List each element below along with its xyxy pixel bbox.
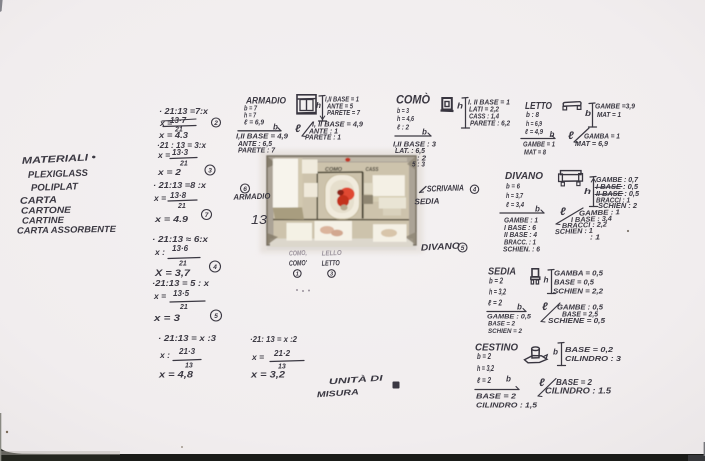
svg-text:21: 21 <box>177 203 186 210</box>
svg-text:CASS : 1,4: CASS : 1,4 <box>469 114 499 121</box>
svg-text:x =: x = <box>153 291 166 301</box>
svg-text:I,II BASE = 4,9: I,II BASE = 4,9 <box>236 134 288 141</box>
svg-text:CILINDRO : 3: CILINDRO : 3 <box>565 354 622 363</box>
svg-text:CASS: CASS <box>366 167 380 173</box>
svg-text:ℓ: ℓ <box>295 123 301 135</box>
svg-text:BASE = 0,2: BASE = 0,2 <box>565 345 614 354</box>
svg-text:x = 4.9: x = 4.9 <box>154 214 189 224</box>
svg-text:x = 4,8: x = 4,8 <box>158 370 193 380</box>
svg-text:b = 2: b = 2 <box>489 276 503 285</box>
svg-text:21·2: 21·2 <box>273 349 291 358</box>
svg-text:h = 3,2: h = 3,2 <box>477 364 494 373</box>
svg-text:21·3: 21·3 <box>178 347 196 356</box>
svg-text:COMO: COMO <box>325 167 342 173</box>
svg-text:·21: 13 = x :2: ·21: 13 = x :2 <box>250 334 297 344</box>
svg-text:b: b <box>506 375 511 384</box>
svg-text:13: 13 <box>251 212 268 227</box>
svg-text:BASE = 2: BASE = 2 <box>488 321 515 328</box>
svg-text:ℓ: ℓ <box>568 130 574 142</box>
svg-text:1: 1 <box>296 271 299 277</box>
svg-text:I BASE : 6: I BASE : 6 <box>504 225 536 232</box>
svg-text:LELLO: LELLO <box>322 250 343 258</box>
svg-text:SCHIEN : 1: SCHIEN : 1 <box>555 228 593 236</box>
svg-text:x = 2: x = 2 <box>157 167 182 177</box>
svg-text:ℓ = 4,9: ℓ = 4,9 <box>525 127 544 136</box>
svg-text:h: h <box>316 101 321 110</box>
svg-text:h: h <box>457 101 463 110</box>
svg-text:x =: x = <box>153 193 166 203</box>
svg-text:ARMADIO: ARMADIO <box>232 191 271 201</box>
svg-text:PARETE : 1: PARETE : 1 <box>305 135 341 142</box>
svg-text:h: h <box>584 187 591 196</box>
svg-text:h: h <box>544 275 549 284</box>
svg-text:·21:13 = 5 : x: ·21:13 = 5 : x <box>152 278 210 288</box>
svg-text:5 : 3: 5 : 3 <box>412 160 426 169</box>
svg-text:4: 4 <box>212 264 217 271</box>
svg-text:BASE = 2: BASE = 2 <box>476 394 516 401</box>
svg-text:GAMBE : 0,5: GAMBE : 0,5 <box>557 305 603 312</box>
svg-text:13·8: 13·8 <box>170 191 187 200</box>
svg-text:II BASE : 4: II BASE : 4 <box>504 232 537 239</box>
svg-text:PARETE : 7: PARETE : 7 <box>238 148 276 155</box>
svg-text:POLIPLAT: POLIPLAT <box>31 181 80 194</box>
svg-text:SCHIEN = 2: SCHIEN = 2 <box>488 328 522 335</box>
svg-text:b : 8: b : 8 <box>526 110 540 119</box>
svg-text:GAMBE = 1: GAMBE = 1 <box>523 142 555 149</box>
svg-text:13·6: 13·6 <box>172 244 189 253</box>
svg-text:5: 5 <box>214 313 218 320</box>
svg-text:· 21:13 = x :3: · 21:13 = x :3 <box>158 333 216 343</box>
svg-text:GAMBA = 1: GAMBA = 1 <box>584 134 620 141</box>
svg-text:3: 3 <box>330 271 333 277</box>
svg-text:DIVANO: DIVANO <box>421 241 460 253</box>
svg-text:x = 4.3: x = 4.3 <box>158 130 188 140</box>
svg-text:b: b <box>585 109 591 118</box>
svg-text:13: 13 <box>185 363 193 370</box>
svg-text:· 21:13 =7:x: · 21:13 =7:x <box>159 106 209 116</box>
svg-text:GAMBE : 0,7: GAMBE : 0,7 <box>596 177 639 184</box>
svg-text:ℓ: ℓ <box>542 301 548 313</box>
svg-text:GAMBE =3,9: GAMBE =3,9 <box>595 103 635 110</box>
svg-text:GAMBE : 0,5: GAMBE : 0,5 <box>487 314 531 321</box>
svg-text:MAT = 1: MAT = 1 <box>597 112 621 119</box>
svg-text:MAT = 8: MAT = 8 <box>524 150 546 157</box>
svg-text:21: 21 <box>178 261 187 268</box>
svg-text:X = 3,7: X = 3,7 <box>154 268 191 278</box>
svg-text:COMO': COMO' <box>289 258 307 268</box>
svg-text:· 21:13 =8 :x: · 21:13 =8 :x <box>153 180 207 190</box>
svg-text:x = 3: x = 3 <box>153 313 180 323</box>
svg-text:b: b <box>550 130 555 139</box>
svg-text:CILINDRO : 1.5: CILINDRO : 1.5 <box>545 386 612 395</box>
svg-text:SCHIENE = 0,5: SCHIENE = 0,5 <box>548 318 605 325</box>
svg-text:5: 5 <box>461 245 465 252</box>
svg-text:ℓ = 2: ℓ = 2 <box>477 376 491 385</box>
svg-text:: 1: : 1 <box>590 235 600 242</box>
svg-text:PARETE : 6,2: PARETE : 6,2 <box>470 121 510 128</box>
svg-text:x =: x = <box>157 150 170 160</box>
svg-text:SCRIVANIA: SCRIVANIA <box>427 182 464 193</box>
svg-text:SCHIEN = 2,2: SCHIEN = 2,2 <box>553 288 603 295</box>
svg-text:x =: x = <box>251 352 264 362</box>
svg-text:CILINDRO : 1,5: CILINDRO : 1,5 <box>476 402 537 409</box>
svg-text:x = 3,2: x = 3,2 <box>250 370 285 380</box>
svg-text:b = 2: b = 2 <box>477 352 491 361</box>
svg-text:COMO,: COMO, <box>289 250 307 258</box>
svg-text:b: b <box>273 123 278 132</box>
svg-text:ℓ = 6,9: ℓ = 6,9 <box>244 118 265 127</box>
svg-text:LETTO: LETTO <box>322 258 340 268</box>
svg-text:SCHIEN. : 6: SCHIEN. : 6 <box>503 247 540 254</box>
svg-text:ℓ : 2: ℓ : 2 <box>397 123 410 132</box>
svg-text:SEDIA: SEDIA <box>414 197 440 207</box>
svg-text:PLEXIGLASS: PLEXIGLASS <box>28 168 89 181</box>
svg-text:ℓ: ℓ <box>560 206 566 218</box>
svg-text:DIVANO: DIVANO <box>505 170 543 182</box>
svg-text:x :: x : <box>159 350 170 360</box>
svg-text:x :: x : <box>154 247 165 257</box>
svg-text:MAT = 6,9: MAT = 6,9 <box>575 141 608 148</box>
svg-text:CARTONE: CARTONE <box>21 205 72 216</box>
svg-text:4: 4 <box>472 187 477 193</box>
svg-text:2: 2 <box>213 120 218 127</box>
svg-text:21: 21 <box>179 304 188 311</box>
svg-text:BRACC. : 1: BRACC. : 1 <box>504 240 536 247</box>
svg-text:3: 3 <box>208 167 212 174</box>
svg-text:b: b <box>535 205 540 214</box>
svg-text:I. II BASE = 1: I. II BASE = 1 <box>468 99 510 106</box>
svg-text:b: b <box>422 128 427 137</box>
svg-text:· 21:13 ≈ 6:x: · 21:13 ≈ 6:x <box>152 234 209 244</box>
svg-text:ℓ = 2: ℓ = 2 <box>488 298 502 307</box>
svg-text:LATI = 2,2: LATI = 2,2 <box>469 107 499 114</box>
svg-text:PARETE = 7: PARETE = 7 <box>327 110 361 117</box>
svg-text:COMÒ: COMÒ <box>396 93 430 106</box>
svg-text:CARTA ASSORBENTE: CARTA ASSORBENTE <box>17 224 117 236</box>
svg-text:b: b <box>517 303 522 312</box>
svg-text:GAMBE : 1: GAMBE : 1 <box>504 218 538 225</box>
svg-text:h = 3,2: h = 3,2 <box>489 287 506 296</box>
svg-text:GAMBA = 0,5: GAMBA = 0,5 <box>554 270 603 277</box>
svg-text:b = 6: b = 6 <box>506 182 521 191</box>
svg-text:BASE = 0,5: BASE = 0,5 <box>554 279 594 286</box>
svg-text:h = 3,7: h = 3,7 <box>506 191 524 200</box>
svg-text:ℓ = 3,4: ℓ = 3,4 <box>506 200 525 209</box>
svg-text:b: b <box>553 347 558 356</box>
svg-text:13·3: 13·3 <box>172 148 189 157</box>
svg-text:7: 7 <box>205 212 209 219</box>
svg-text:13·5: 13·5 <box>173 289 190 298</box>
